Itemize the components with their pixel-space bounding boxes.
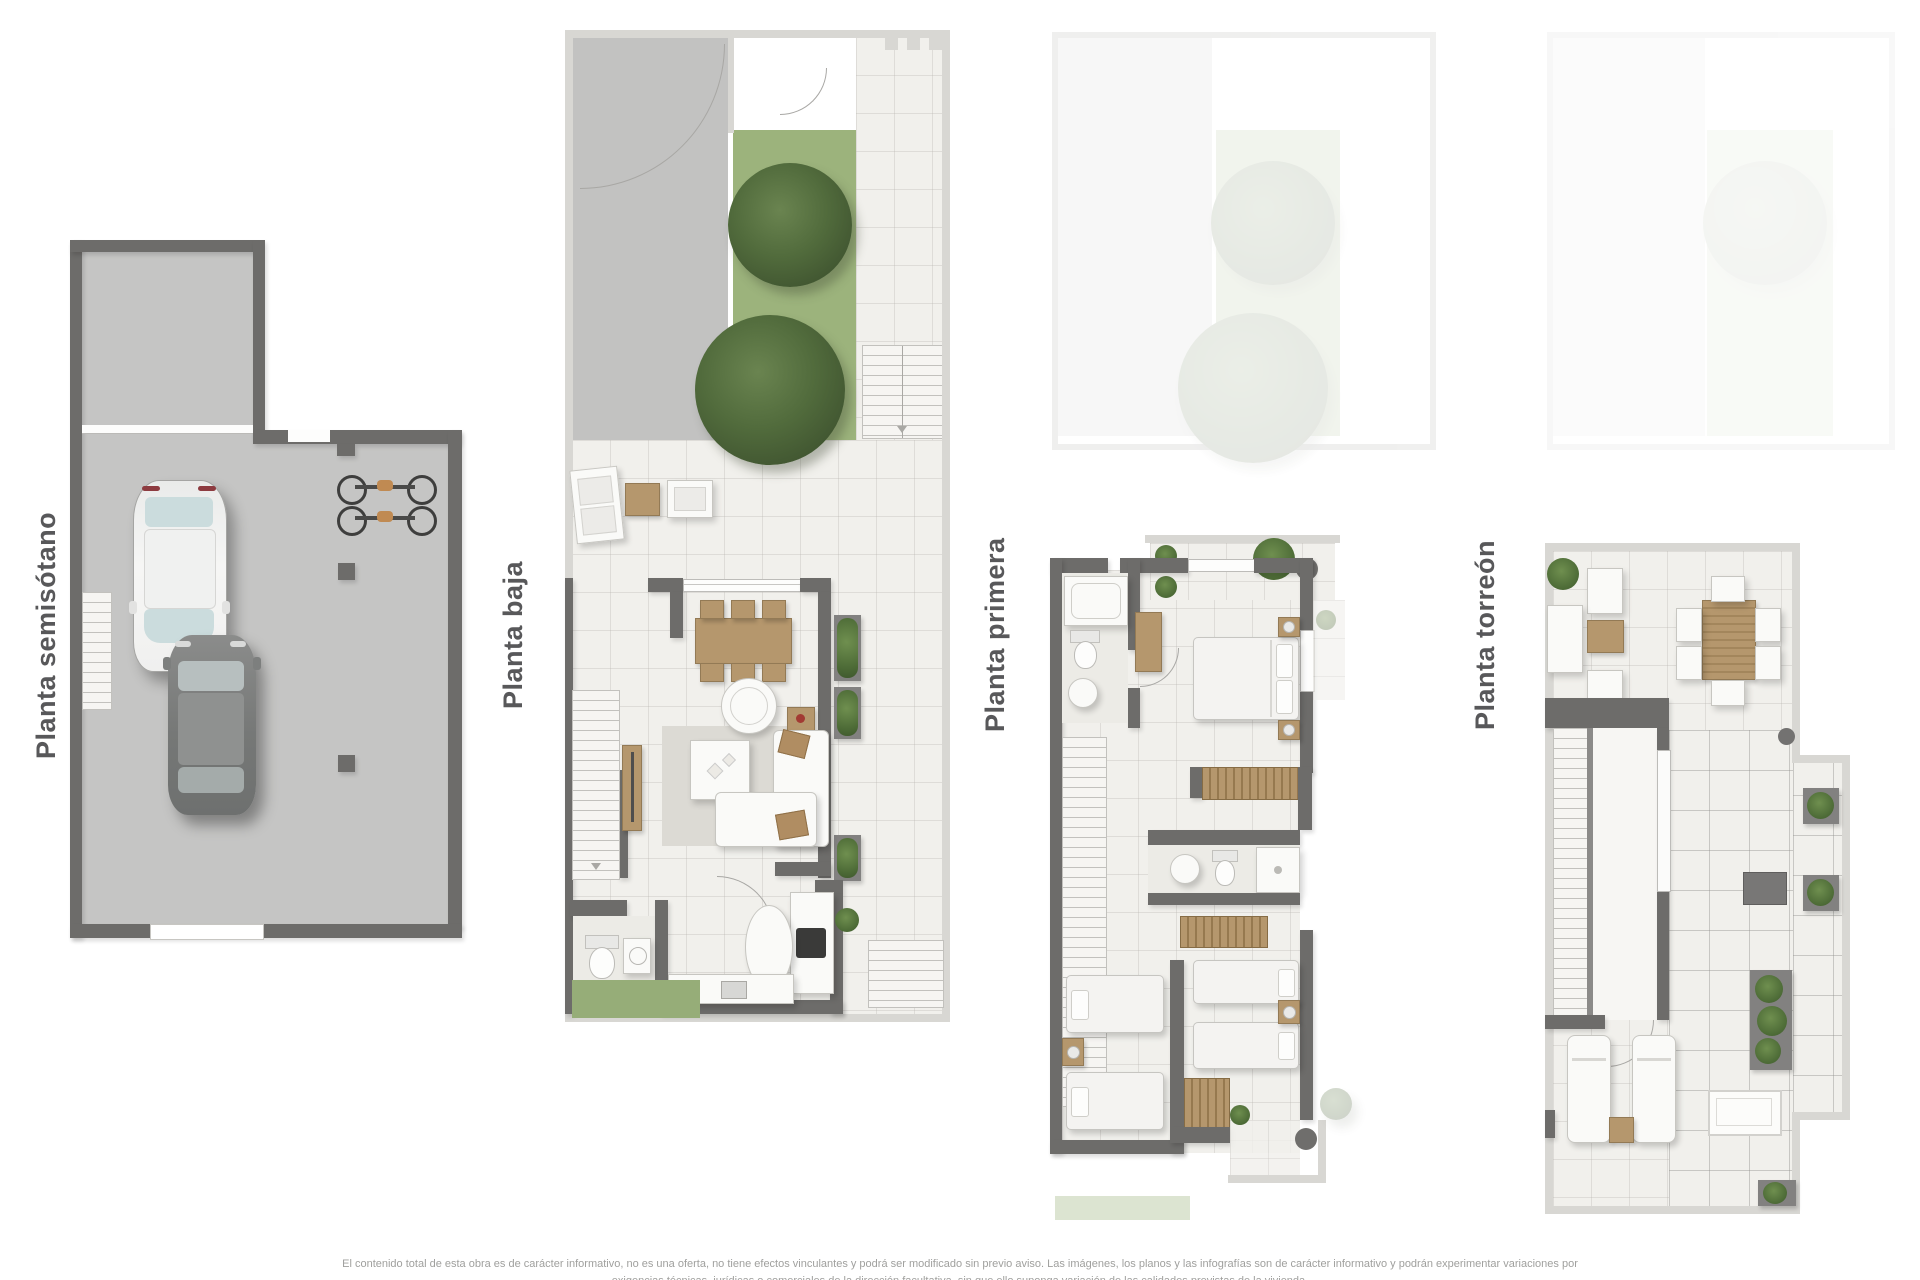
wall-light [1797, 1112, 1850, 1120]
ghost-garden-strip [1055, 1196, 1190, 1220]
cooktop [796, 928, 826, 958]
wall [1148, 893, 1300, 905]
single-bed [1193, 1022, 1299, 1069]
chimney-box [1743, 872, 1787, 905]
car-windshield [178, 661, 244, 691]
pillow [1071, 990, 1089, 1020]
car-roof [178, 693, 244, 765]
car-taillight [142, 486, 160, 491]
wall [1170, 1127, 1230, 1143]
sink [1068, 678, 1098, 708]
ghost-tree [1178, 313, 1328, 463]
single-bed [1066, 1072, 1164, 1130]
wardrobe [1180, 916, 1268, 948]
wall [70, 240, 82, 938]
wall-light [1228, 1175, 1323, 1183]
chair [700, 663, 724, 682]
round-armchair [721, 678, 777, 734]
wall [800, 578, 831, 592]
chair [762, 600, 786, 619]
floorplans-sheet: Planta semisótano Planta baja Planta pri… [0, 0, 1920, 1280]
wall [1300, 930, 1313, 1120]
lounger-fold [1637, 1058, 1671, 1061]
garage-gate [150, 924, 264, 940]
chair [762, 663, 786, 682]
crenellation [885, 38, 898, 50]
wall [253, 430, 460, 444]
wall-light [565, 30, 950, 38]
toilet-bowl [1215, 860, 1235, 886]
plant [1230, 1105, 1250, 1125]
wall [648, 578, 683, 592]
garage-door [82, 425, 253, 434]
sink [1170, 854, 1200, 884]
pillow [1276, 644, 1293, 678]
stair-arrow [591, 863, 601, 870]
tub-basin [1071, 583, 1121, 619]
blanket-fold [1270, 640, 1272, 717]
planter-greenery [1763, 1182, 1787, 1204]
chair [1755, 608, 1781, 642]
wall [253, 240, 265, 438]
stairs [572, 690, 620, 880]
window [683, 579, 802, 592]
window [1657, 750, 1671, 892]
plant [1155, 576, 1177, 598]
decor [707, 763, 724, 780]
ghost-tree [1703, 161, 1827, 285]
pillow [1278, 1032, 1295, 1060]
lamp [1283, 621, 1295, 633]
chair [1711, 576, 1745, 602]
nightstand [1278, 720, 1300, 740]
floorplan-semisotano [70, 240, 462, 938]
planter [834, 835, 861, 881]
planter [834, 687, 861, 739]
coffee-table [690, 740, 750, 800]
stairs [1553, 728, 1589, 1022]
wall [1128, 688, 1140, 728]
disclaimer-line-1: El contenido total de esta obra es de ca… [0, 1257, 1920, 1271]
planter [1803, 875, 1839, 911]
wall [1170, 960, 1184, 1153]
lamp [1067, 1046, 1080, 1059]
toilet-bowl [589, 947, 615, 979]
car-mirror [129, 601, 137, 614]
wall-light [728, 37, 734, 133]
ghost-tree [1211, 161, 1335, 285]
ghost-patio [1553, 38, 1705, 436]
bike-wheel [407, 506, 437, 536]
nightstand [1062, 1038, 1084, 1066]
chair [1755, 646, 1781, 680]
side-table [787, 707, 815, 731]
nightstand [1278, 1000, 1300, 1024]
planter-greenery [1757, 1006, 1787, 1036]
wall [570, 900, 627, 916]
sofa-pillow [775, 810, 809, 841]
pillow [1278, 969, 1295, 997]
tree [695, 315, 845, 465]
tree [728, 163, 852, 287]
driveway-ramp-floor [80, 250, 255, 440]
wall [670, 592, 683, 638]
decor [796, 714, 805, 723]
double-bed [1193, 637, 1299, 720]
plant [835, 908, 859, 932]
shower-drain [1274, 866, 1282, 874]
dark-car [168, 635, 256, 815]
planter-greenery [837, 690, 858, 736]
car-headlight [230, 641, 246, 647]
label-planta-torreon: Planta torreón [1470, 500, 1501, 770]
chair [1711, 680, 1745, 706]
cushion [577, 475, 614, 505]
outdoor-dining-table [1702, 600, 1756, 680]
disclaimer-line-2: exigencias técnicas, jurídicas o comerci… [0, 1274, 1920, 1280]
ghost-tree [1320, 1088, 1352, 1120]
planter-greenery [1807, 879, 1834, 906]
bike-seat [377, 511, 393, 522]
bike-seat [377, 480, 393, 491]
nightstand [1278, 617, 1300, 637]
floorplan-primera [1050, 30, 1405, 1222]
sink-basin [629, 947, 647, 965]
planter-greenery [837, 618, 858, 678]
cushion [674, 487, 706, 511]
lounger-fold [1572, 1058, 1606, 1061]
wall [1050, 558, 1062, 1153]
sun-lounger [1632, 1035, 1676, 1143]
planter-greenery [837, 838, 858, 878]
planter-greenery [1755, 975, 1783, 1003]
skylight-inner [1716, 1098, 1772, 1126]
bicycle [337, 473, 433, 501]
wall-light [1145, 535, 1340, 543]
balcony-plant [1316, 610, 1336, 630]
wall [1190, 767, 1202, 798]
plant [1547, 558, 1579, 590]
lamp [1283, 1006, 1296, 1019]
planter-greenery [1755, 1038, 1781, 1064]
stair-rail [902, 346, 903, 438]
sink [623, 938, 651, 974]
chair [731, 600, 755, 619]
wall [70, 240, 255, 252]
chair [1676, 646, 1702, 680]
label-planta-baja: Planta baja [498, 500, 529, 770]
wardrobe [1184, 1078, 1230, 1130]
wall-light [1842, 755, 1850, 1120]
garden-strip [572, 980, 700, 1018]
door-swing-arc [780, 68, 827, 115]
exterior-stairs [868, 940, 944, 1008]
decor [722, 753, 736, 767]
floorplan-torreon [1545, 30, 1890, 1222]
label-planta-semisotano: Planta semisótano [31, 500, 62, 770]
round-planter [1778, 728, 1795, 745]
pillow [1276, 680, 1293, 714]
window [1188, 559, 1256, 572]
single-bed [1193, 960, 1299, 1004]
pillar [338, 755, 355, 772]
stair-arrow [897, 426, 907, 433]
planter [1750, 970, 1792, 1070]
wall-light [942, 30, 950, 1022]
car-mirror [222, 601, 230, 614]
wall [1545, 1015, 1605, 1029]
toilet-bowl [1074, 641, 1097, 669]
wall-light [1792, 543, 1800, 763]
car-mirror [253, 657, 261, 670]
armchair [1587, 568, 1623, 614]
shower [1256, 847, 1300, 893]
car-headlight [175, 641, 191, 647]
wall [1148, 830, 1300, 845]
skylight [1708, 1090, 1782, 1136]
crenellation [929, 38, 942, 50]
ghost-floor-below [1050, 30, 1430, 442]
wall-light [1545, 543, 1800, 551]
window-line [684, 584, 801, 585]
armchair [569, 466, 624, 545]
label-planta-primera: Planta primera [980, 500, 1011, 770]
planter [1803, 788, 1839, 824]
car-mirror [163, 657, 171, 670]
stairs [82, 592, 112, 710]
car-rear-window [178, 767, 244, 793]
wall-light [1318, 1120, 1326, 1183]
planter [834, 615, 861, 681]
bathtub [1064, 576, 1128, 626]
car-rear-window [145, 497, 213, 527]
crenellation [907, 38, 920, 50]
ghost-floor-below [1545, 30, 1890, 442]
planter-greenery [1807, 792, 1834, 819]
bike-wheel [337, 475, 367, 505]
armchair [667, 480, 713, 518]
cushion [580, 505, 617, 535]
coffee-table [1587, 620, 1624, 653]
pillow [1071, 1087, 1089, 1117]
wall [1545, 1110, 1555, 1138]
single-bed [1066, 975, 1164, 1033]
side-table [625, 483, 660, 516]
dining-table [695, 618, 792, 664]
entry-door [288, 430, 330, 442]
tv-unit [622, 745, 642, 831]
bike-wheel [407, 475, 437, 505]
car-taillight [198, 486, 216, 491]
balcony-floor [1230, 1120, 1300, 1175]
wall [1050, 1140, 1184, 1154]
kitchen-sink [721, 981, 747, 999]
side-table [1609, 1117, 1634, 1143]
wall [1545, 698, 1669, 728]
wall-light [1545, 1206, 1800, 1214]
lamp [1283, 724, 1295, 736]
cushion [730, 687, 768, 725]
pillar [338, 563, 355, 580]
dresser [1135, 612, 1162, 672]
wall [1298, 767, 1312, 830]
wall [70, 924, 462, 938]
outdoor-sofa [1547, 605, 1583, 673]
wardrobe [1202, 767, 1300, 800]
sun-lounger [1567, 1035, 1611, 1143]
floorplan-baja [565, 30, 950, 1022]
bike-wheel [337, 506, 367, 536]
tv-screen [631, 752, 634, 822]
chair [1676, 608, 1702, 642]
planter [1758, 1180, 1796, 1206]
stair-landing [1593, 728, 1657, 1020]
car-roof [144, 529, 216, 609]
wall-stub [337, 444, 355, 456]
wall [448, 430, 462, 928]
chair [700, 600, 724, 619]
exterior-stairs [862, 345, 944, 439]
bicycle [337, 504, 433, 532]
round-planter [1295, 1128, 1317, 1150]
wall [775, 862, 831, 876]
